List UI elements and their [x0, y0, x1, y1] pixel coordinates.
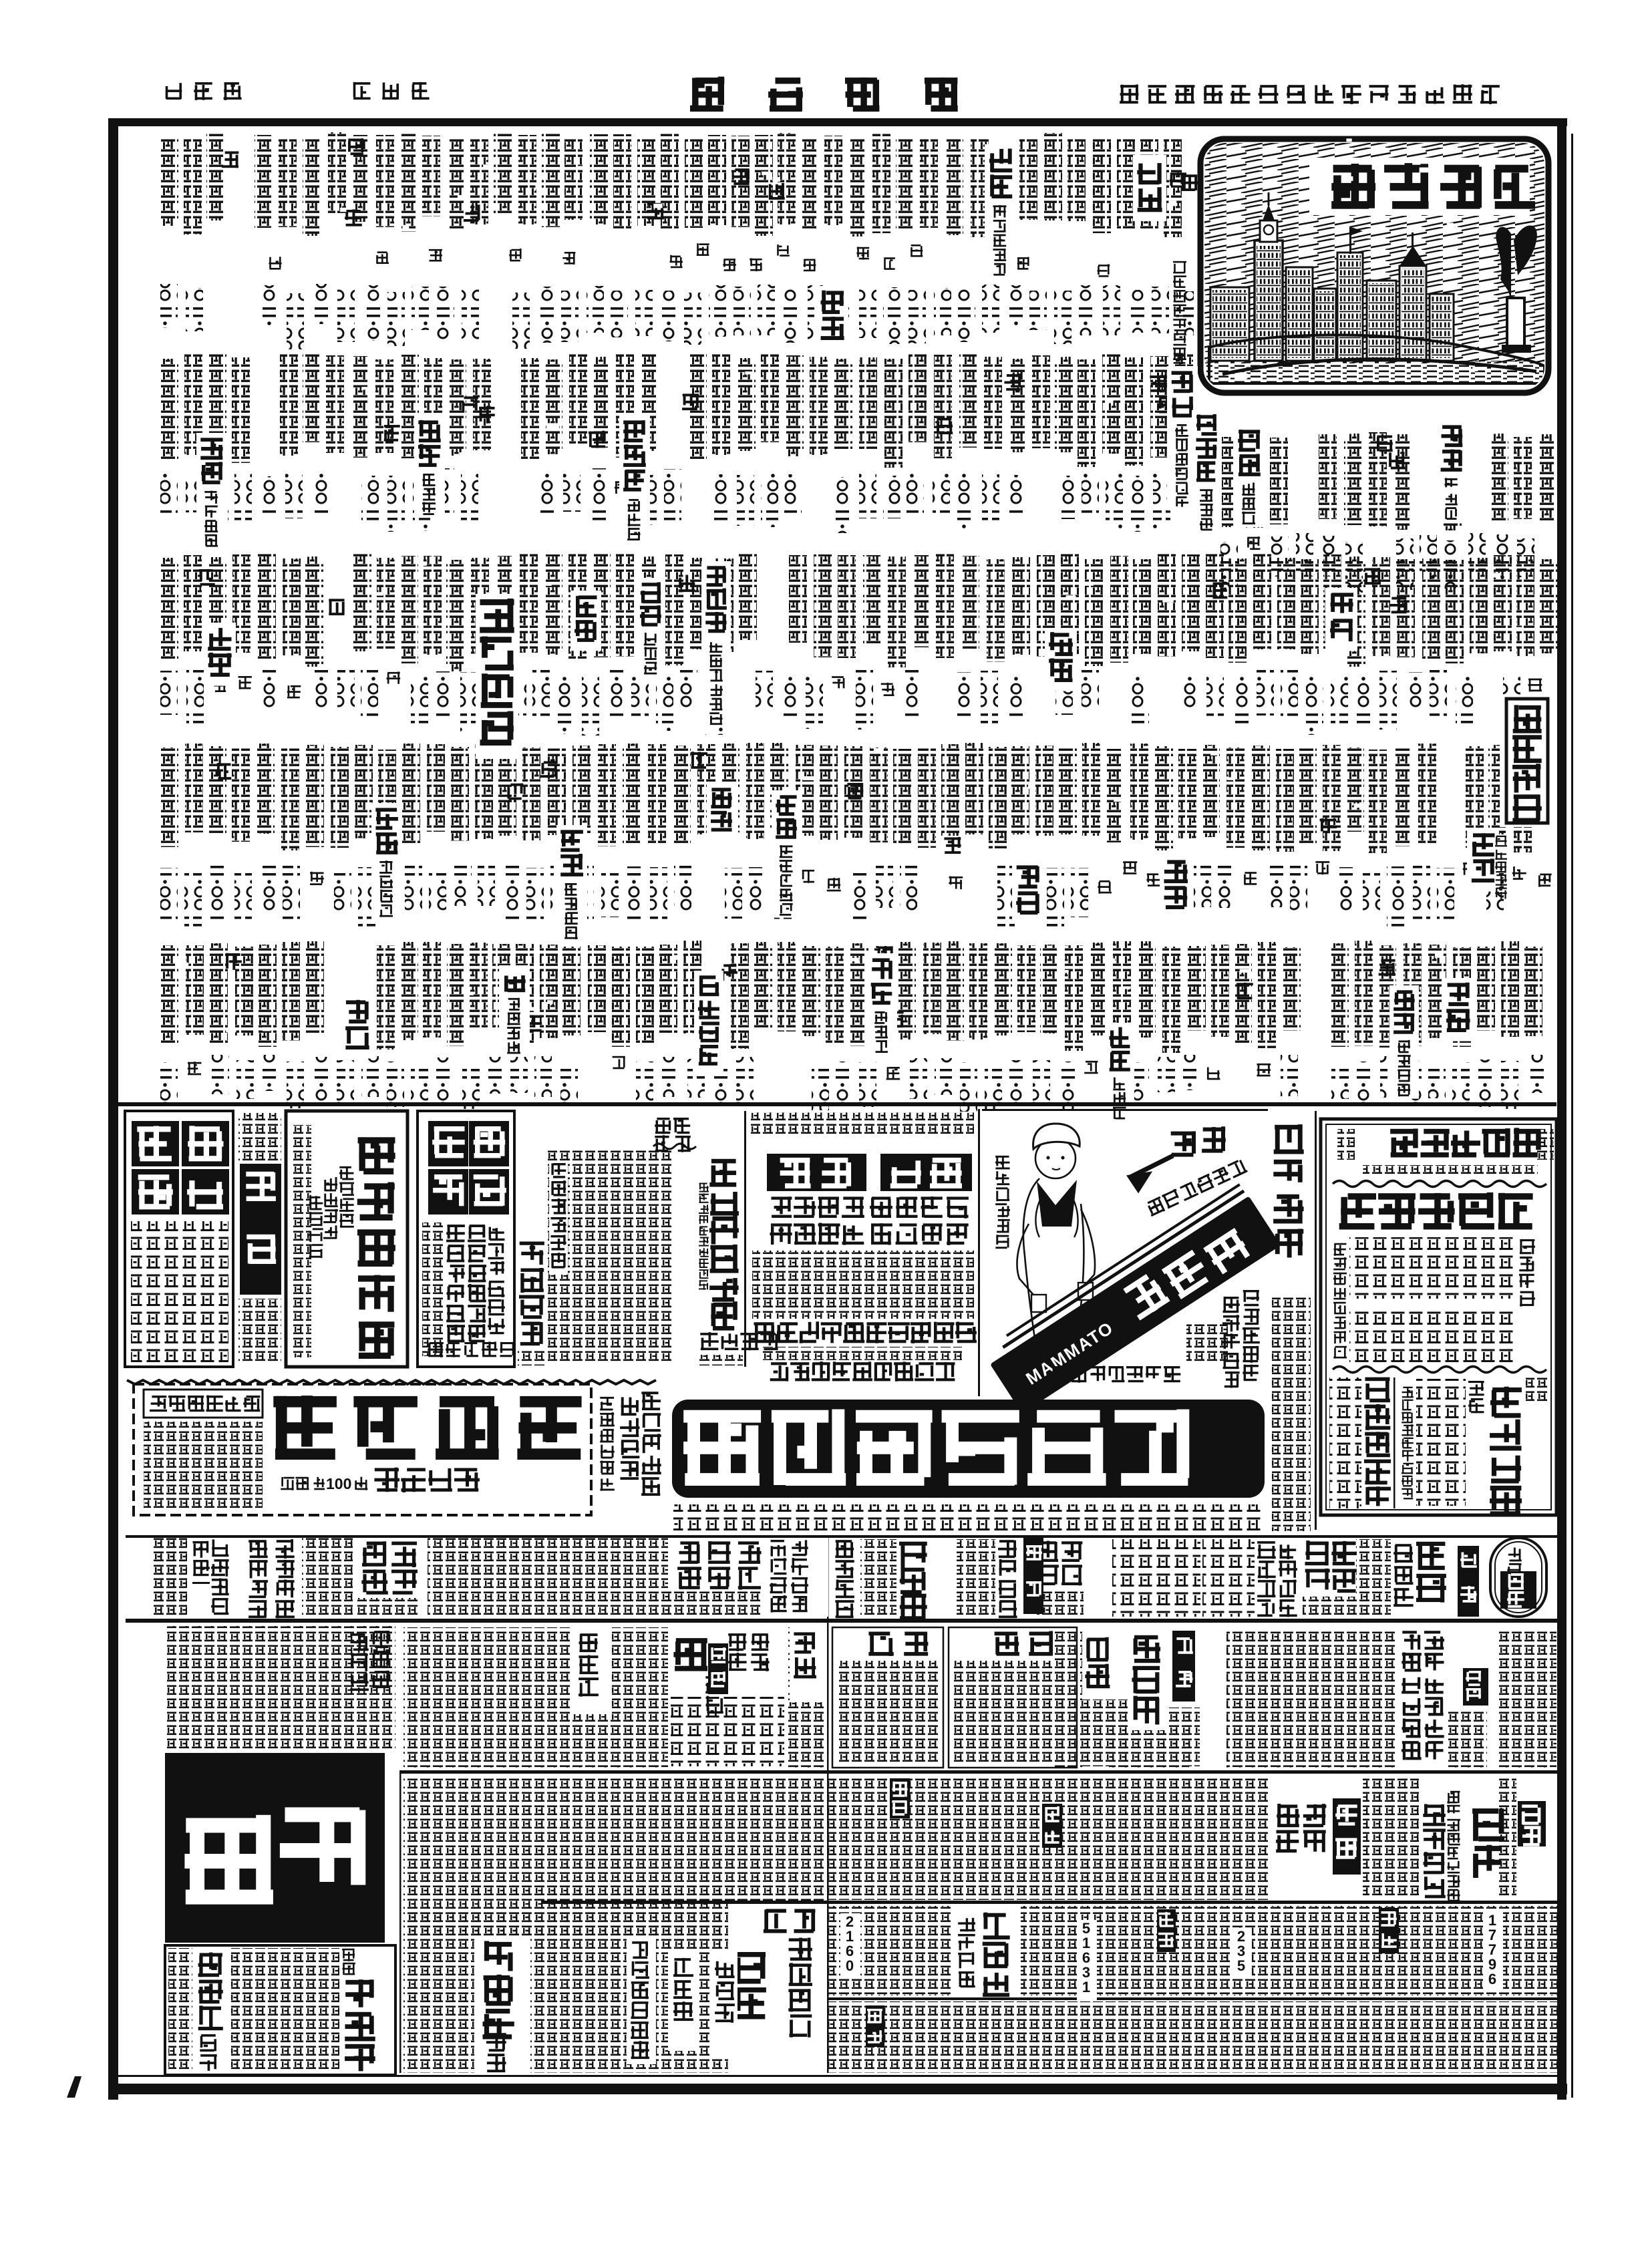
svg-text:100: 100: [326, 1475, 351, 1492]
svg-text:17796: 17796: [1488, 1912, 1496, 1987]
svg-text:2160: 2160: [846, 1913, 854, 1974]
svg-text:235: 235: [1237, 1928, 1245, 1974]
svg-text:51631: 51631: [1082, 1920, 1090, 1995]
